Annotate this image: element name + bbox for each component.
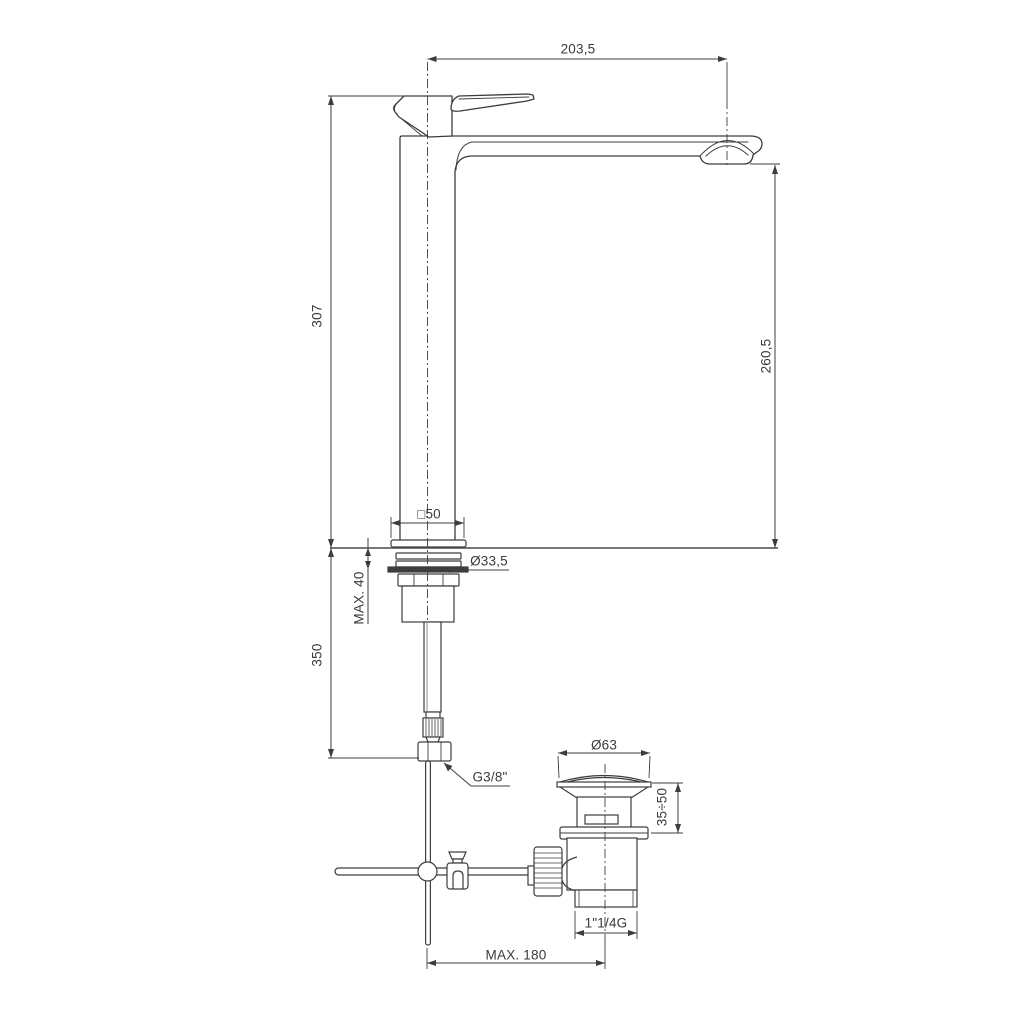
faucet-technical-drawing bbox=[0, 0, 1024, 1024]
faucet-body-spout-outline bbox=[400, 136, 762, 540]
dim-waste-cap-label: Ø63 bbox=[591, 738, 617, 752]
supply-hose bbox=[424, 622, 441, 712]
hose-collar-flare bbox=[426, 737, 440, 742]
mounting-ring-upper bbox=[396, 553, 461, 559]
waste-funnel bbox=[560, 787, 648, 798]
dim-waste-range-label: 35÷50 bbox=[655, 788, 669, 826]
waste-mechanism-slot bbox=[585, 815, 618, 824]
deck-thickness-arrow-down bbox=[365, 561, 371, 569]
mounting-nut bbox=[398, 574, 459, 586]
waste-cap-flange bbox=[557, 782, 651, 787]
waste-cap-dome bbox=[560, 776, 648, 783]
dim-deck-thickness-label: MAX. 40 bbox=[352, 571, 366, 624]
dim-shank-thread-label: Ø33,5 bbox=[470, 554, 508, 568]
supply-hex-nut bbox=[418, 742, 451, 761]
dim-spout-reach-label: 203,5 bbox=[561, 42, 596, 56]
dim-waste-thread-label: 1"1/4G bbox=[585, 916, 628, 930]
ext-lines-waste-cap bbox=[558, 756, 650, 778]
mounting-ring-lower bbox=[396, 561, 461, 567]
dim-hose-drop-label: 350 bbox=[310, 643, 324, 666]
dim-base-width-label: □50 bbox=[417, 507, 441, 521]
dim-supply-connection-label: G3/8" bbox=[472, 770, 507, 784]
base-plate bbox=[391, 540, 466, 547]
rod-clamp-body bbox=[447, 863, 468, 889]
ball-joint bbox=[418, 862, 437, 881]
threaded-shank bbox=[402, 586, 454, 622]
dim-total-height-label: 307 bbox=[310, 304, 324, 327]
waste-nut-stub bbox=[528, 866, 534, 885]
rod-clamp-knob bbox=[449, 852, 466, 859]
deck-thickness-arrow-up bbox=[365, 548, 371, 556]
pop-up-rod bbox=[426, 761, 431, 945]
hose-collar-top bbox=[426, 712, 440, 718]
handle-block bbox=[394, 96, 452, 137]
dim-spout-height-label: 260,5 bbox=[759, 339, 773, 374]
handle-lever bbox=[451, 94, 534, 111]
waste-lower-body bbox=[567, 838, 637, 890]
waste-tailpiece bbox=[575, 890, 637, 907]
leader-supply-connection-arrow bbox=[444, 763, 453, 772]
technical-drawing-page: 203,5 307 260,5 □50 Ø33,5 MAX. 40 350 G3… bbox=[0, 0, 1024, 1024]
waste-knurled-nut bbox=[534, 847, 562, 896]
dim-max-reach-label: MAX. 180 bbox=[486, 948, 547, 962]
